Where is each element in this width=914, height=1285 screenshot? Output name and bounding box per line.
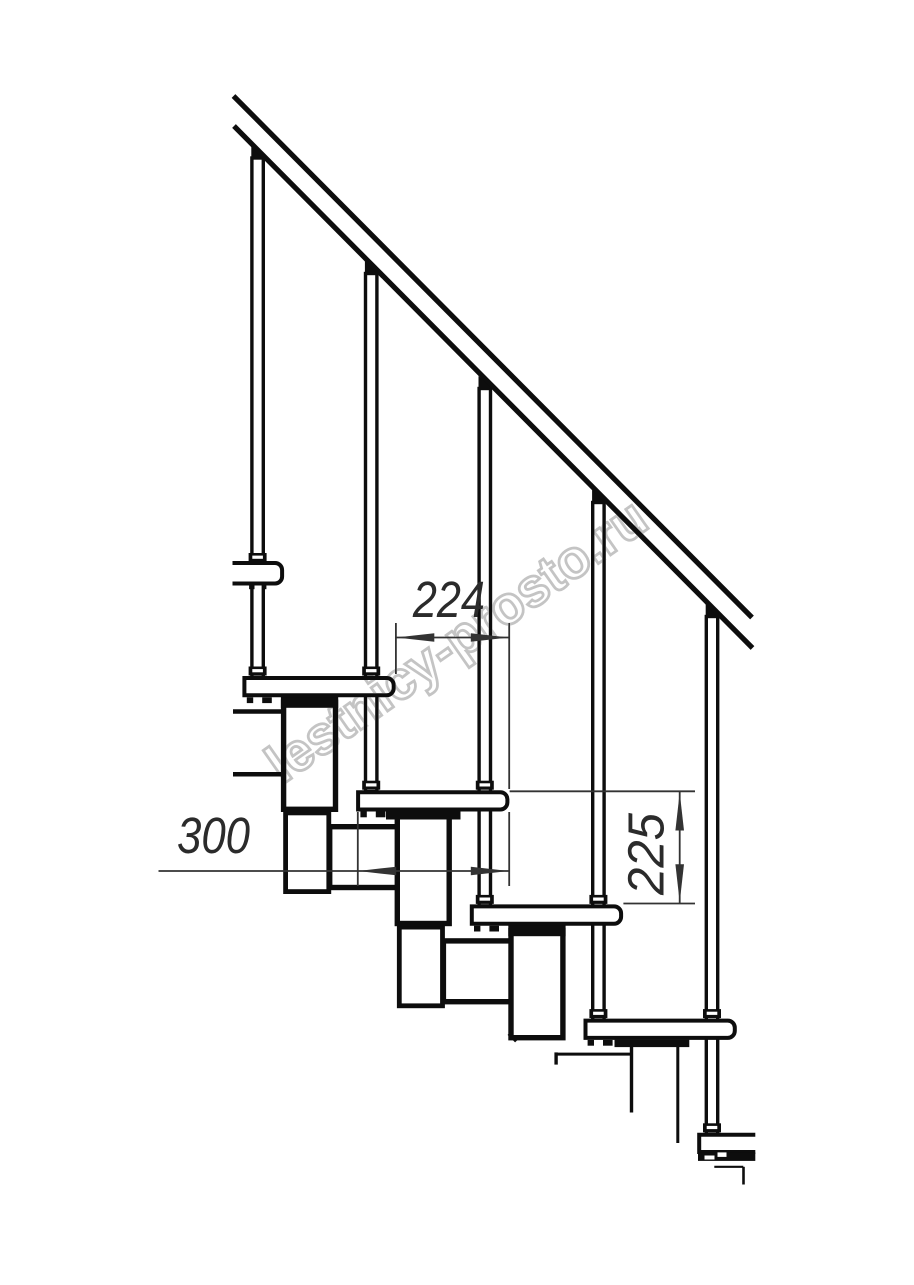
svg-text:300: 300	[177, 807, 250, 864]
svg-text:225: 225	[618, 812, 675, 896]
